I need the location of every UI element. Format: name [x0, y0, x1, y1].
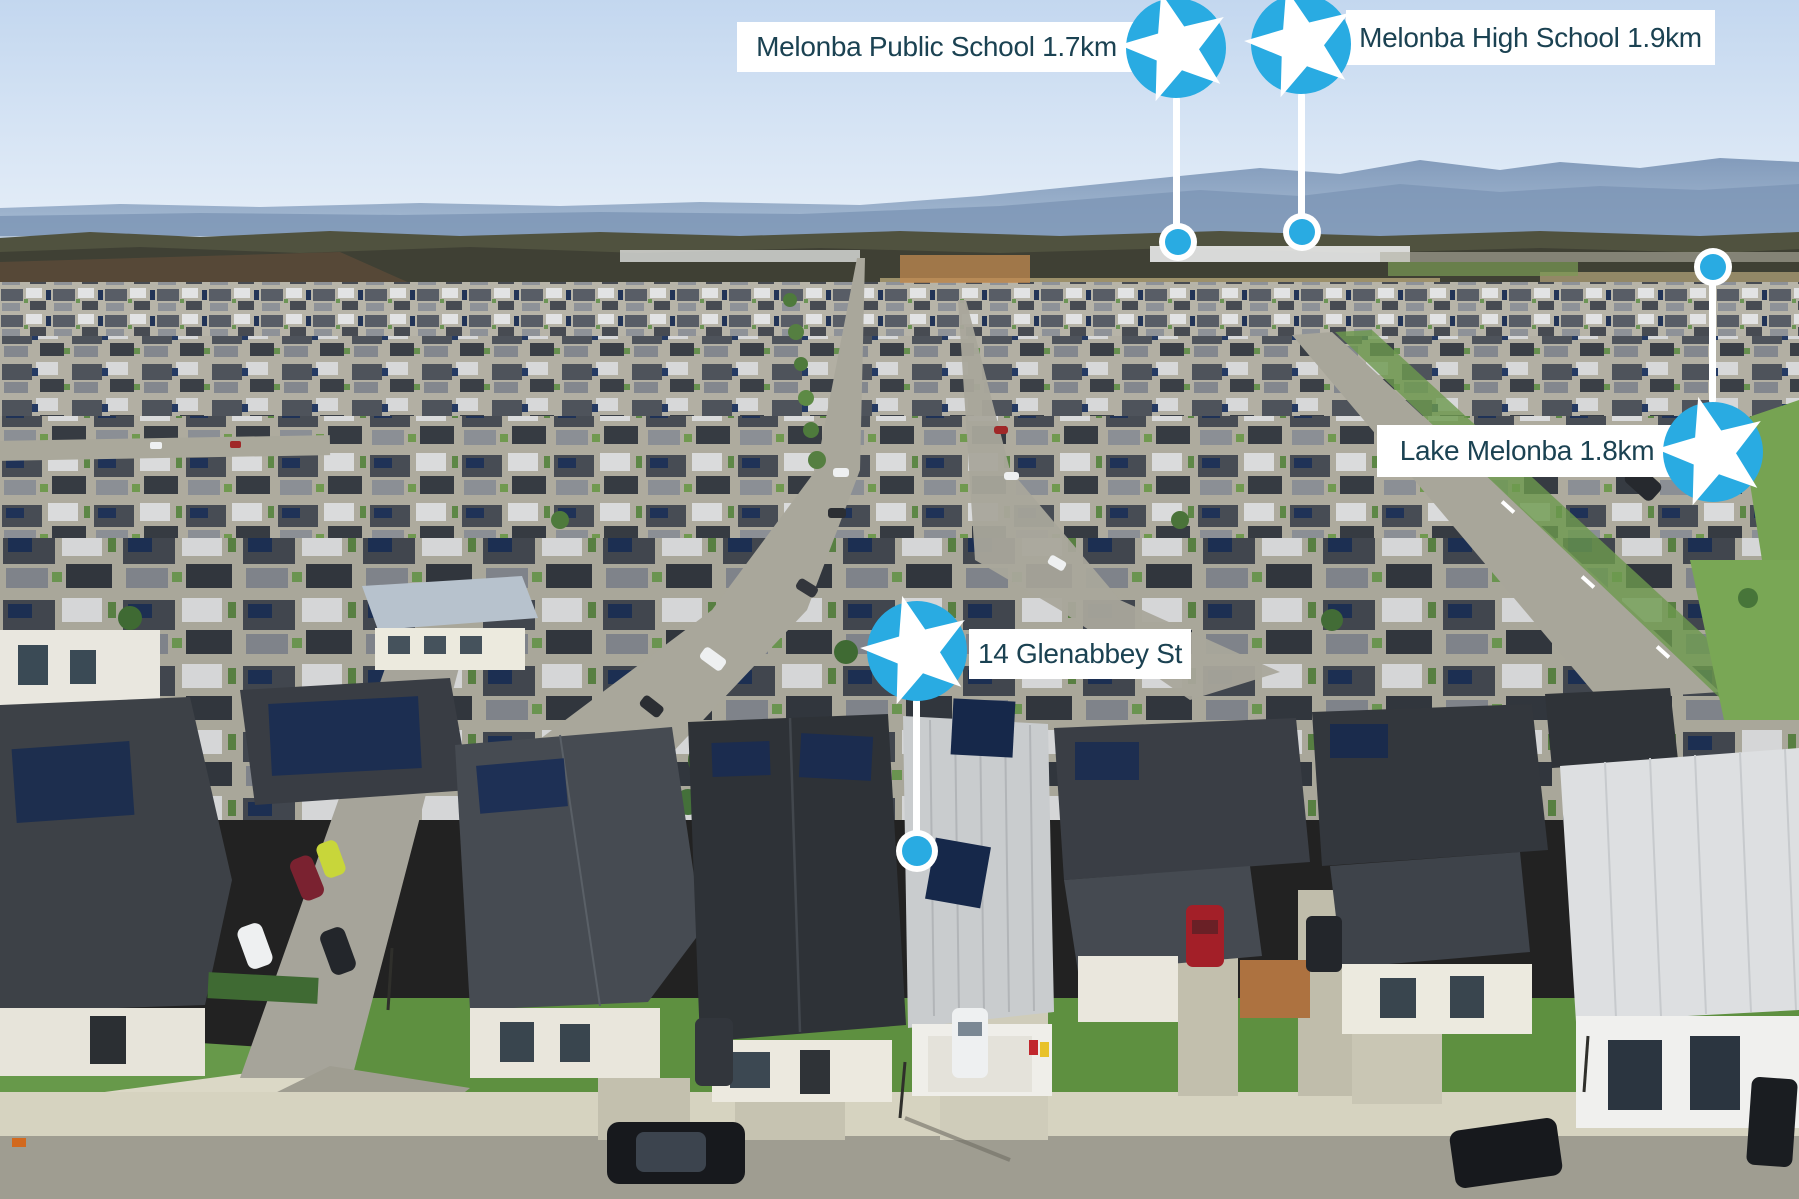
marker-label-text: 14 Glenabbey St: [978, 638, 1182, 670]
marker-stem: [913, 698, 920, 836]
marker-dot: [896, 830, 938, 872]
marker-dot: [1159, 223, 1197, 261]
marker-stem: [1298, 92, 1305, 218]
marker-label: Melonba High School 1.9km: [1346, 10, 1715, 65]
aerial-photo: Melonba Public School 1.7km Melonba High…: [0, 0, 1799, 1199]
star-pin-icon: [1241, 0, 1361, 104]
marker-label: 14 Glenabbey St: [969, 629, 1191, 679]
star-pin-icon: [1653, 392, 1773, 512]
marker-dot: [1283, 213, 1321, 251]
marker-label-text: Melonba High School 1.9km: [1359, 22, 1702, 54]
marker-dot: [1694, 248, 1732, 286]
marker-label: Lake Melonba 1.8km: [1377, 425, 1677, 477]
marker-label-text: Melonba Public School 1.7km: [756, 31, 1117, 63]
marker-stem: [1709, 282, 1716, 404]
star-pin-icon: [857, 591, 977, 711]
marker-stem: [1173, 96, 1180, 228]
marker-label-text: Lake Melonba 1.8km: [1400, 435, 1655, 467]
marker-label: Melonba Public School 1.7km: [737, 22, 1136, 72]
star-pin-icon: [1116, 0, 1236, 108]
